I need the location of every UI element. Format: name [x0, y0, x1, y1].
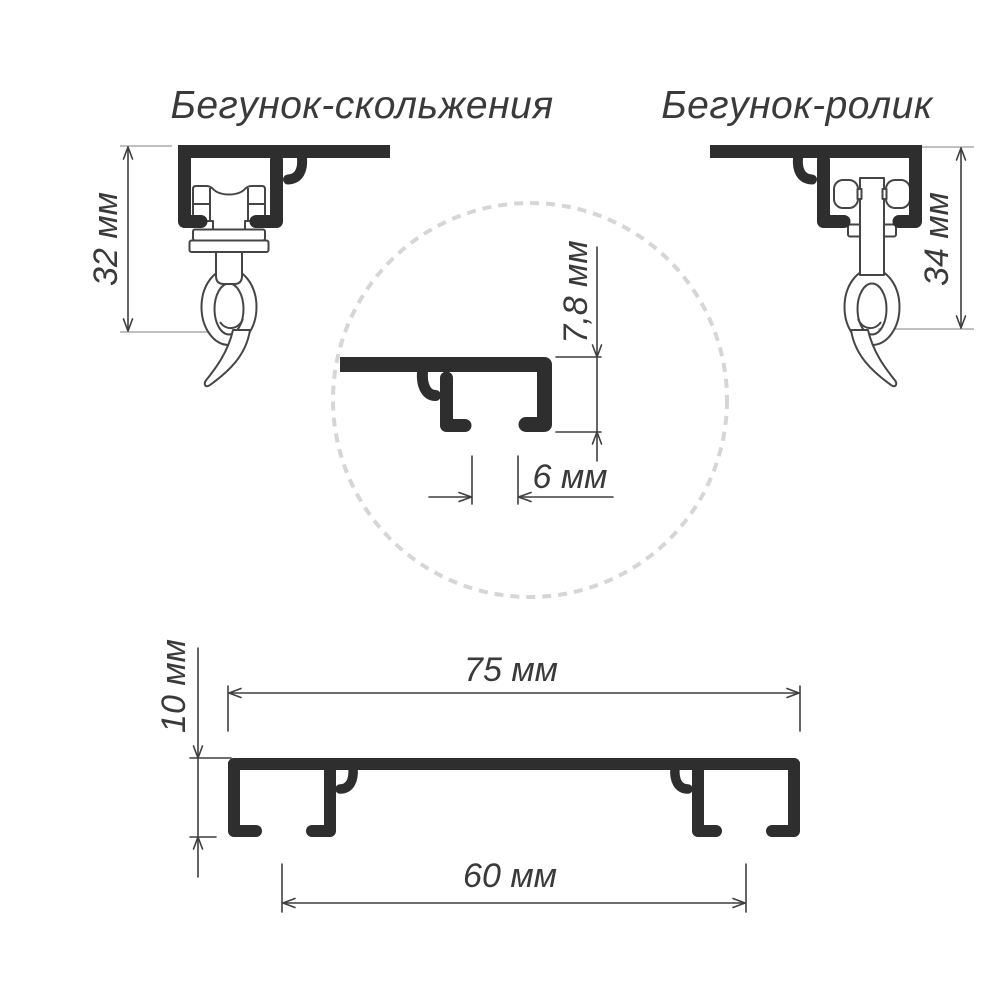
dimension-label-7-8mm: 7,8 мм	[559, 240, 593, 343]
roller-glider-hook	[834, 178, 910, 386]
detail-view-circle	[333, 203, 727, 597]
dimension-label-6mm: 6 мм	[533, 460, 608, 494]
curtain-rail-diagram: Бегунок-скольжения Бегунок-ролик 32 мм 3…	[0, 0, 1000, 1000]
dimension-label-10mm: 10 мм	[157, 639, 191, 733]
diagram-artwork	[0, 0, 1000, 1000]
full-profile-cross-section	[234, 764, 794, 831]
detail-rail-channel	[340, 365, 545, 426]
dimension-label-32mm: 32 мм	[89, 192, 123, 286]
title-slide-runner: Бегунок-скольжения	[170, 86, 553, 125]
dimension-label-60mm: 60 мм	[463, 859, 557, 893]
dimension-label-34mm: 34 мм	[920, 192, 954, 286]
title-roller-runner: Бегунок-ролик	[661, 86, 932, 125]
dimension-lines	[124, 147, 966, 912]
dimension-label-75mm: 75 мм	[464, 653, 558, 687]
